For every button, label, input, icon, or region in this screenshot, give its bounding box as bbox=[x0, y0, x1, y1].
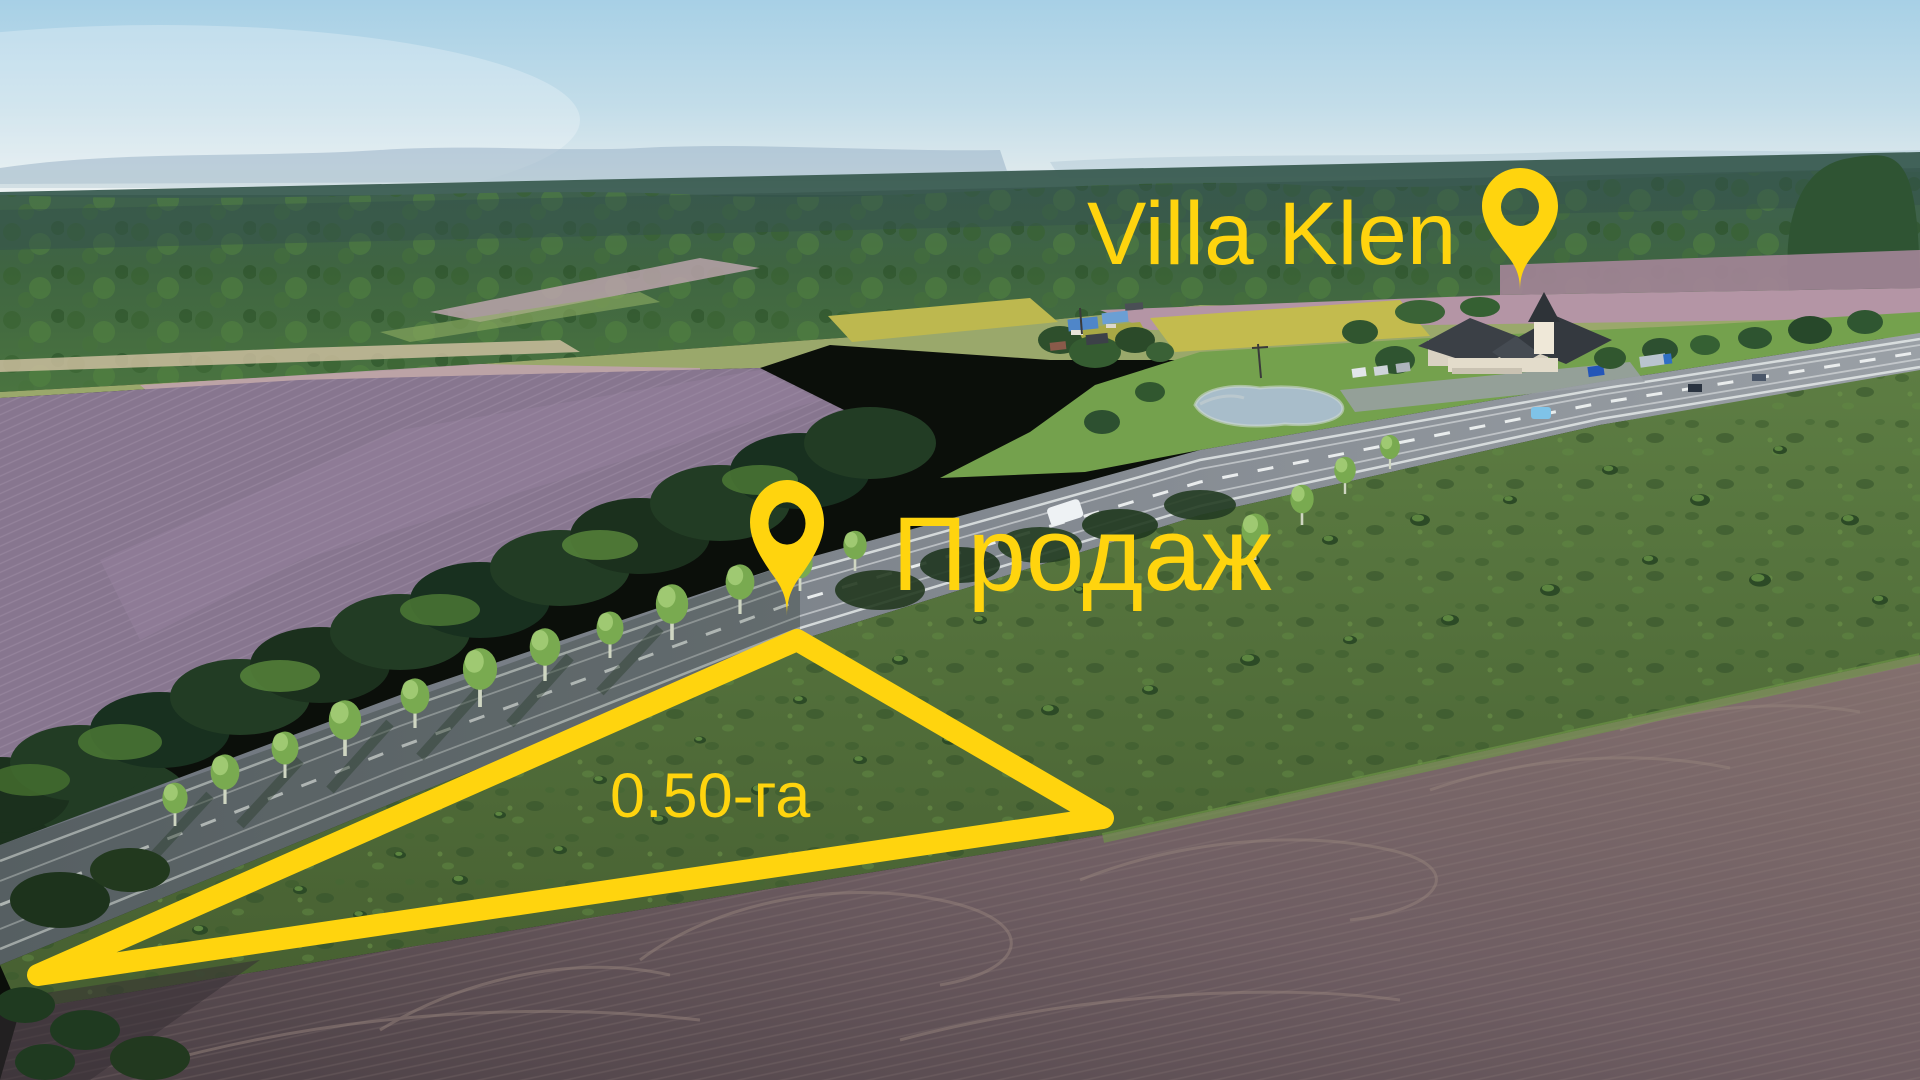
aerial-photo: Villa Klen Продаж 0.50-га bbox=[0, 0, 1920, 1080]
pond bbox=[1195, 386, 1343, 426]
plot-area-label: 0.50-га bbox=[610, 761, 811, 831]
villa-tower bbox=[1534, 320, 1554, 354]
landmark-label: Villa Klen bbox=[1087, 183, 1456, 283]
light-blue-van bbox=[1531, 407, 1551, 419]
dark-car bbox=[1688, 384, 1702, 392]
sale-label: Продаж bbox=[892, 496, 1272, 613]
